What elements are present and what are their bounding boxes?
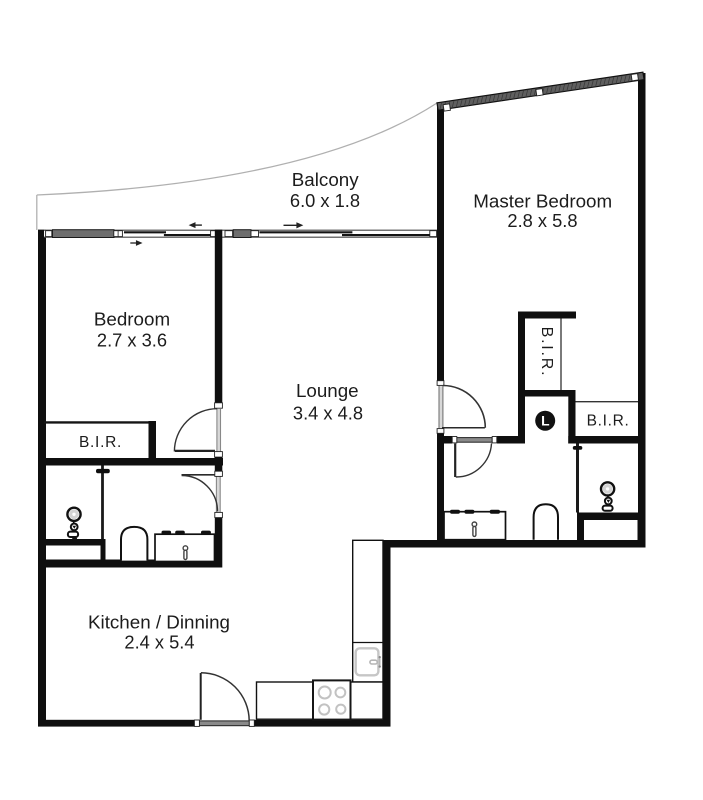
svg-text:Kitchen / Dinning: Kitchen / Dinning <box>88 611 230 632</box>
svg-text:B.I.R.: B.I.R. <box>538 327 555 378</box>
svg-text:Bedroom: Bedroom <box>94 308 170 329</box>
svg-text:Balcony: Balcony <box>292 169 359 190</box>
svg-text:2.8 x 5.8: 2.8 x 5.8 <box>507 210 577 231</box>
svg-text:B.I.R.: B.I.R. <box>79 434 122 451</box>
svg-text:Master Bedroom: Master Bedroom <box>473 190 612 211</box>
svg-text:L: L <box>541 414 549 429</box>
svg-text:2.7 x 3.6: 2.7 x 3.6 <box>97 329 167 350</box>
svg-text:6.0 x 1.8: 6.0 x 1.8 <box>290 190 360 211</box>
svg-text:Lounge: Lounge <box>296 380 359 401</box>
svg-text:2.4 x 5.4: 2.4 x 5.4 <box>124 631 194 652</box>
svg-text:3.4 x 4.8: 3.4 x 4.8 <box>293 402 363 423</box>
svg-text:B.I.R.: B.I.R. <box>587 412 630 429</box>
